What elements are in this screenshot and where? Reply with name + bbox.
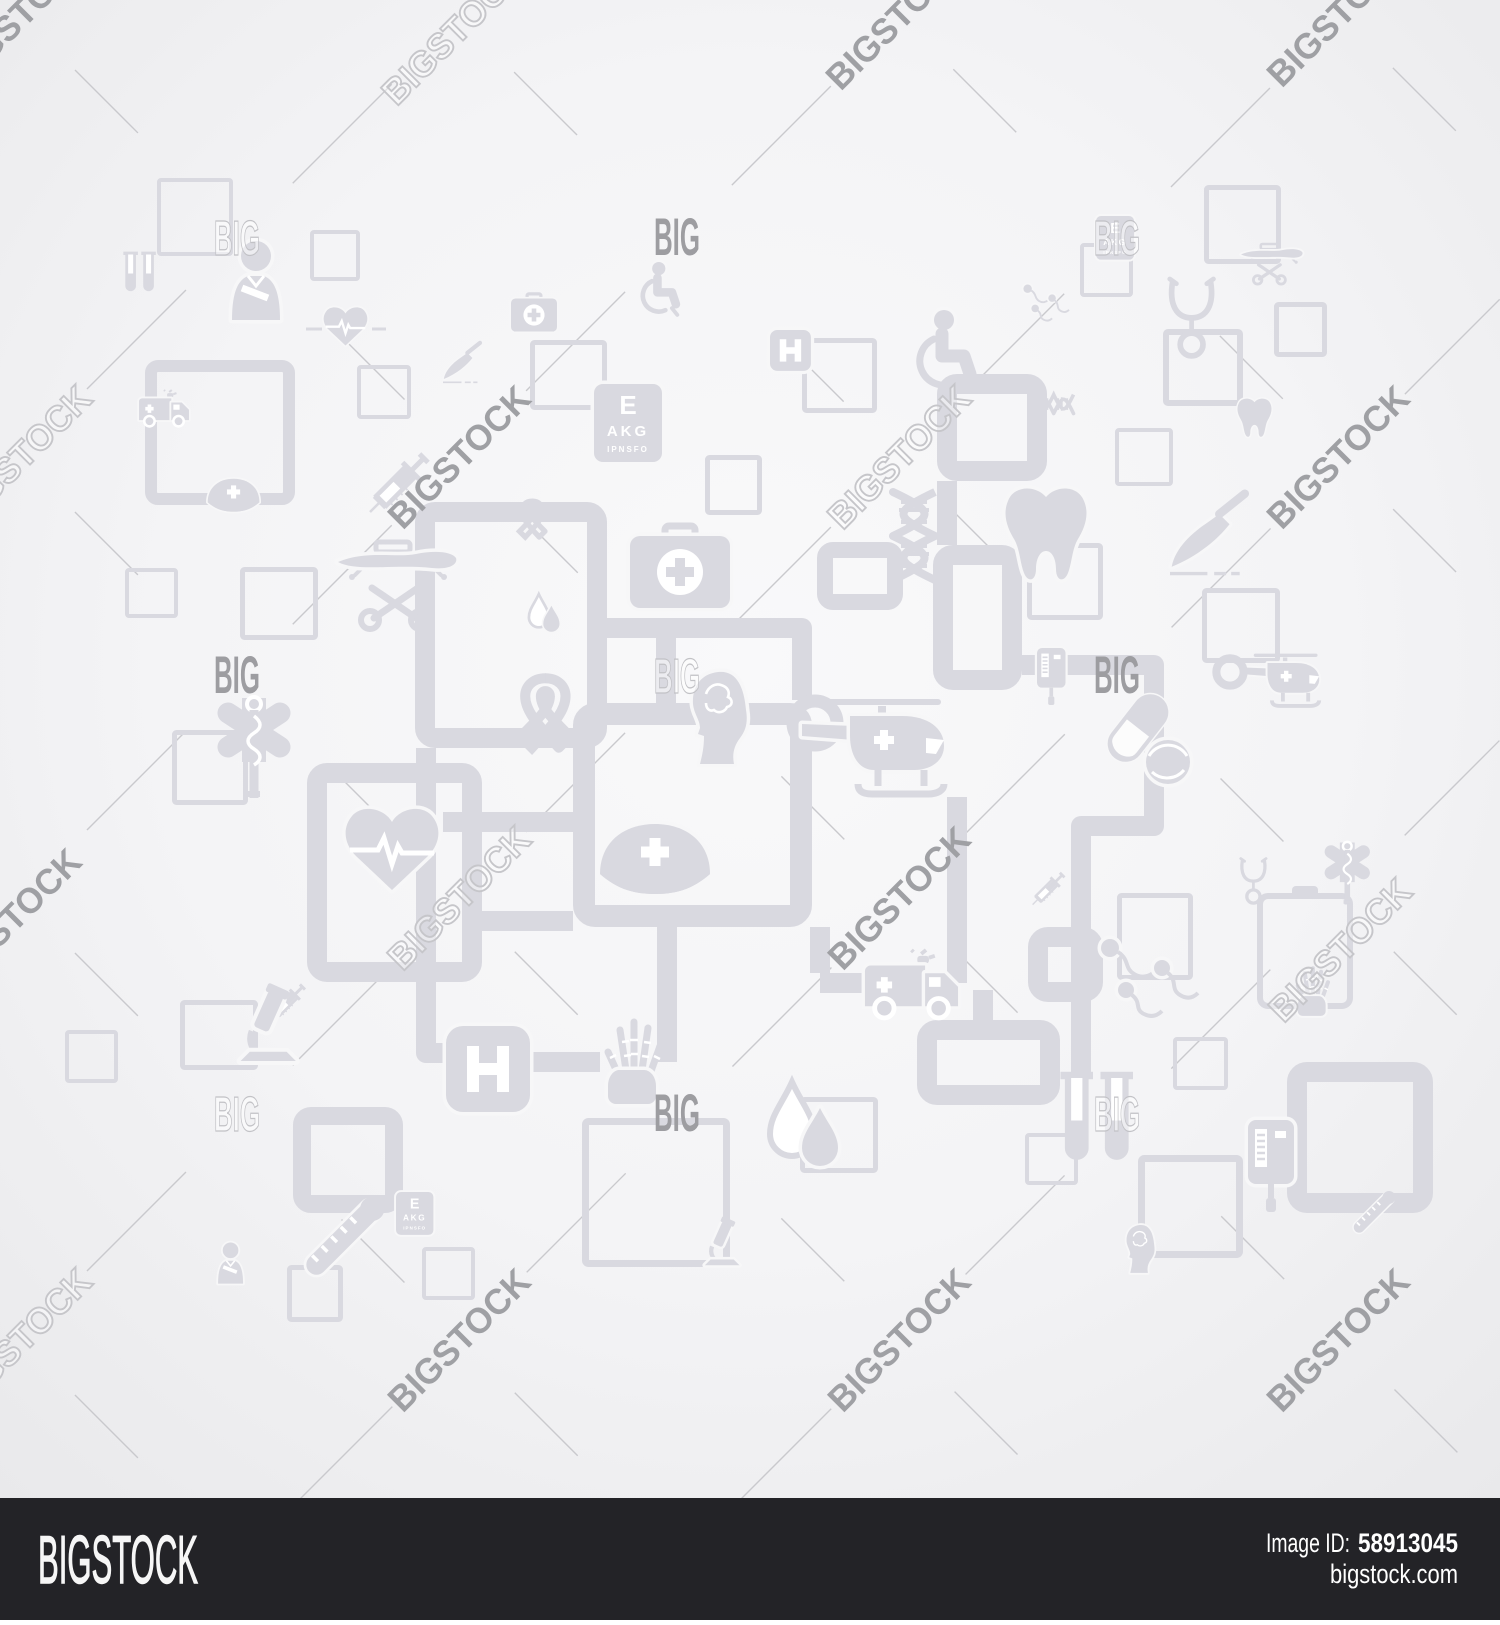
svg-text:BIG: BIG — [654, 208, 700, 267]
svg-text:BIG: BIG — [1094, 646, 1140, 705]
svg-text:bigstock.com: bigstock.com — [1330, 1559, 1458, 1589]
svg-text:BIG: BIG — [654, 650, 700, 704]
svg-text:58913045: 58913045 — [1358, 1528, 1458, 1558]
svg-text:BIG: BIG — [214, 212, 260, 266]
svg-text:BIG: BIG — [1094, 212, 1140, 266]
svg-text:BIG: BIG — [654, 1084, 700, 1143]
svg-text:BIG: BIG — [214, 1088, 260, 1142]
svg-text:Image ID:: Image ID: — [1266, 1528, 1350, 1558]
svg-text:BIGSTOCK: BIGSTOCK — [38, 1522, 198, 1598]
svg-text:BIG: BIG — [1094, 1088, 1140, 1142]
svg-text:BIG: BIG — [214, 646, 260, 705]
